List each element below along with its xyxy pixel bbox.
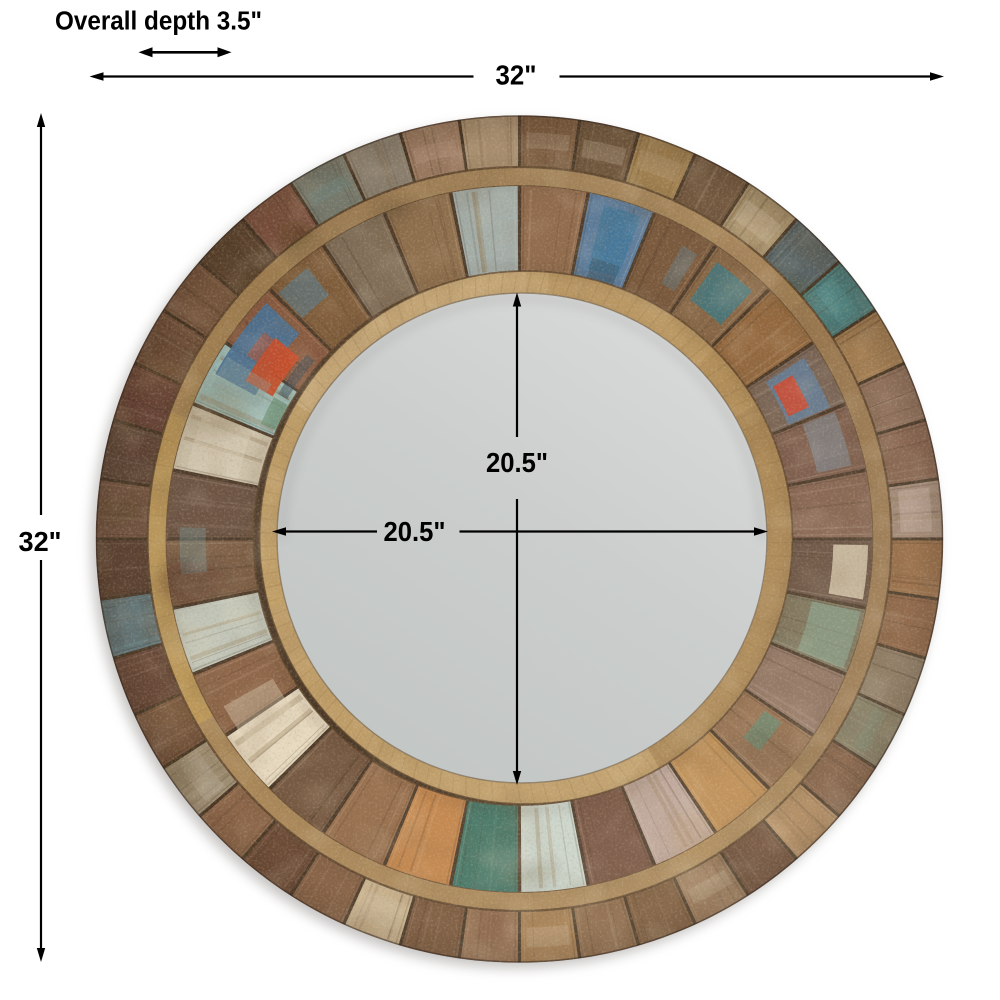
svg-text:32": 32" [19, 526, 62, 557]
svg-text:20.5": 20.5" [384, 516, 446, 547]
svg-text:32": 32" [496, 60, 537, 91]
svg-text:20.5": 20.5" [486, 447, 548, 478]
svg-text:Overall depth 3.5": Overall depth 3.5" [55, 8, 262, 36]
